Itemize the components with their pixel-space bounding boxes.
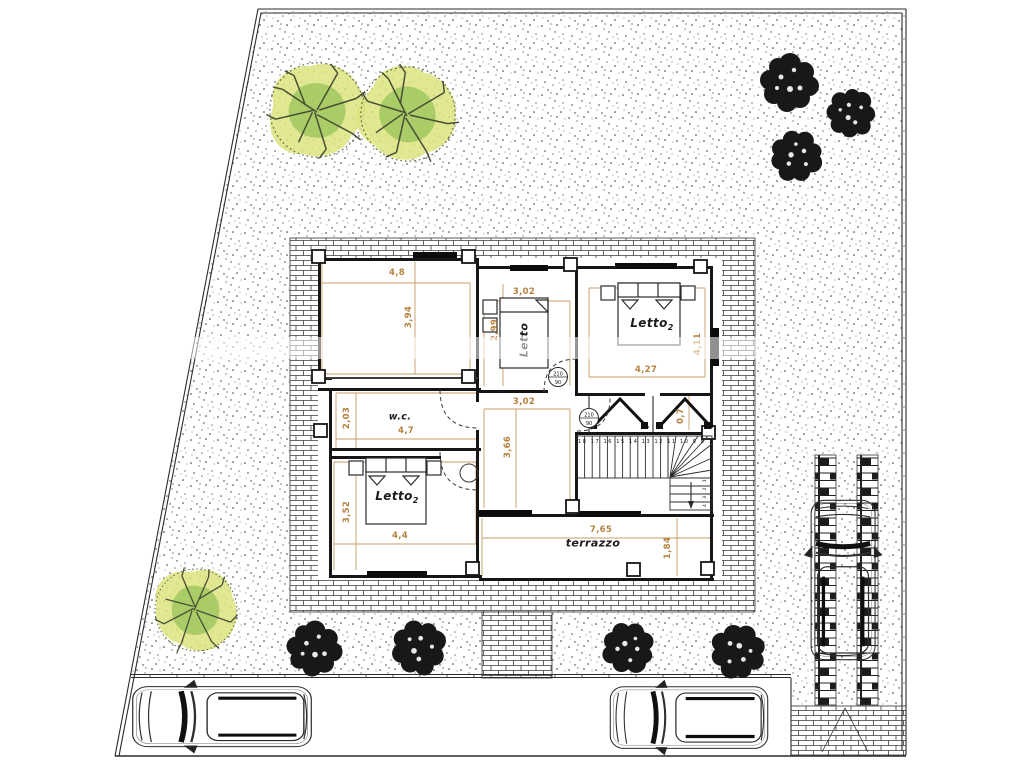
stair-step-numbers-lower: 4 3 2 1 [702,477,708,507]
plan-drawing: 18 17 16 15 14 13 12 11 10 9 8 7 4 3 2 1… [0,0,1024,768]
room-label-text: Letto [630,316,668,330]
watermark-band [150,337,762,359]
door-tag-1: 210 90 [549,368,568,387]
room-label-subscript: 2 [668,323,674,332]
dim-bedroom-left-width: 4,4 [392,531,408,541]
dim-terrace-depth: 3,94 [404,306,414,328]
green-tree-icon [266,63,365,158]
window-terrazzo-right [577,511,641,517]
dim-hall-depth: 3,66 [503,436,513,458]
window-top-right [615,263,677,269]
dim-bedroom-left-depth: 3,52 [342,501,352,523]
room-label-wc: w.c. [389,412,412,423]
room-label-letto-left: Letto2 [375,489,418,505]
dim-room-top-width: 3,02 [513,287,535,297]
dim-terrazzo-depth: 1,84 [663,537,673,559]
door-tag-height: 210 [553,372,563,378]
dim-wc-depth: 2,03 [342,407,352,429]
car-icon [610,680,767,754]
door-tag-2: 210 90 [580,409,599,428]
dim-wc-width: 4,7 [398,426,414,436]
door-tag-width: 90 [555,380,561,386]
room-label-letto-right: Letto2 [630,316,673,332]
dim-hall-width: 3,02 [513,397,535,407]
window-terrazzo-left [478,510,532,516]
dim-bedroom-right-width: 4,27 [635,365,657,375]
window-top-terrace [413,252,457,258]
room-label-terrazzo: terrazzo [566,537,621,550]
site-plan-canvas: 18 17 16 15 14 13 12 11 10 9 8 7 4 3 2 1… [0,0,1024,768]
room-label-subscript: 2 [413,496,419,505]
door-tag-height: 210 [584,413,594,419]
window-bottom-bedroom [367,571,427,577]
window-top-mid [510,265,548,271]
brick-pad [791,706,906,755]
room-label-text: Letto [375,489,413,503]
car-icon [133,680,312,752]
dim-terrace-width: 4,8 [389,268,405,278]
stair-step-numbers-upper: 18 17 16 15 14 13 12 11 10 9 8 7 [578,439,714,445]
door-tag-width: 90 [586,421,592,427]
dim-terrazzo-width: 7,65 [590,525,612,535]
garden-path [482,612,552,678]
dim-closet-depth: 0,7 [676,408,686,424]
